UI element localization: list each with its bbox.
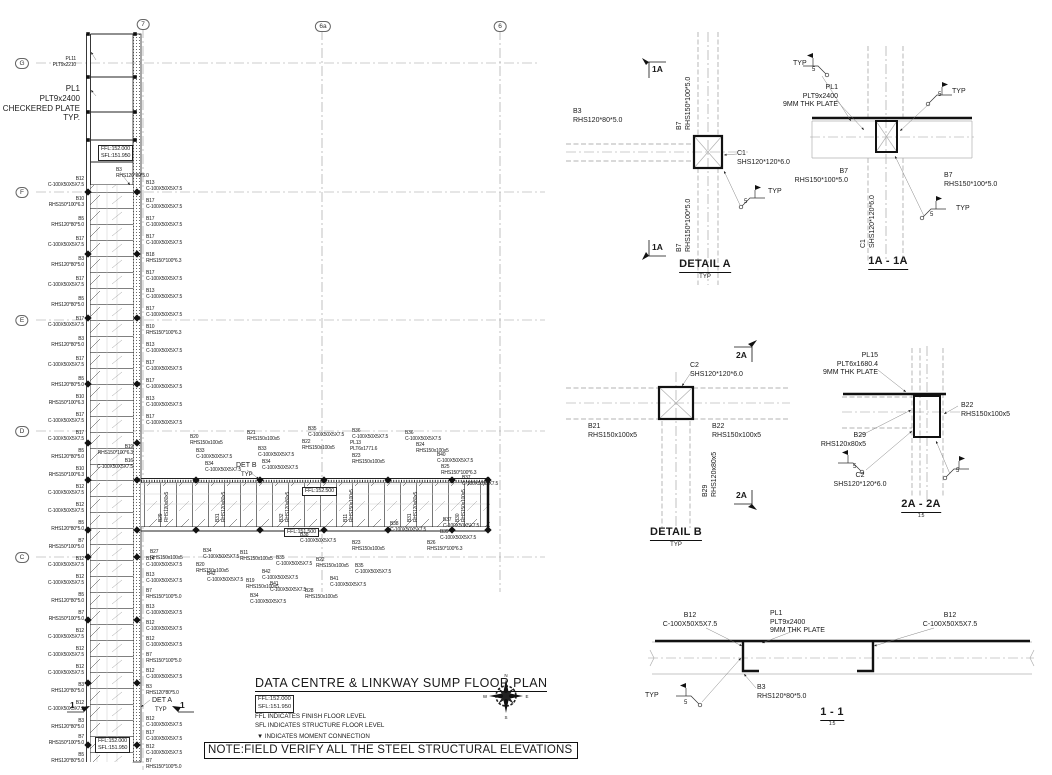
callout-label: B5 RHS120*80*5.0 bbox=[51, 592, 84, 604]
callout-label: B17 C-100X50X5X7.5 bbox=[146, 198, 182, 210]
callout-label: B17 C-100X50X5X7.5 bbox=[48, 356, 84, 368]
callout-label: B34 C-100X50X5X7.5 bbox=[262, 459, 298, 471]
callout-label: 1:5 bbox=[918, 513, 924, 519]
callout-label: B5 RHS120*80*5.0 bbox=[51, 296, 84, 308]
callout-label: B36 C-100X50X5X7.5 bbox=[352, 428, 388, 440]
callout-label: B7 RHS150*100*5.0 bbox=[146, 588, 181, 600]
callout-label: B7 RHS150*100*5.0 bbox=[49, 538, 84, 550]
callout-label: B3 RHS120*80*5.0 bbox=[573, 108, 622, 125]
callout-label: B38 C-100X50X5X7.5 bbox=[390, 521, 426, 533]
callout-label: B37 C-100X50X5X7.5 bbox=[462, 475, 498, 487]
callout-label: B11 RHS150x100x5 bbox=[343, 489, 355, 522]
grid-bubble-d: D bbox=[15, 426, 29, 437]
callout-label: TYP bbox=[768, 188, 782, 197]
callout-label: TYP bbox=[645, 692, 659, 701]
title-level-box: FFL:152.000 SFL:151.950 bbox=[255, 695, 294, 713]
callout-label: B12 C-100X50X5X7.5 bbox=[146, 716, 182, 728]
callout-label: B12 C-100X50X5X7.5 bbox=[146, 744, 182, 756]
section-1a-title: 1A - 1A bbox=[868, 255, 908, 270]
grid-bubble-c: C bbox=[15, 552, 29, 563]
grid-bubble-f: F bbox=[16, 187, 29, 198]
compass-letter: S bbox=[504, 715, 507, 720]
grid-bubble-6a: 6a bbox=[315, 21, 331, 32]
callout-label: 5 bbox=[930, 212, 933, 219]
callout-label: B20 RHS150x100x5 bbox=[190, 434, 223, 446]
callout-label: B22 RHS150x100x5 bbox=[712, 423, 761, 440]
callout-label: 5 bbox=[938, 92, 941, 99]
callout-label: B13 C-100X50X5X7.5 bbox=[146, 572, 182, 584]
callout-label: B19 RHS150*100*6.3 bbox=[98, 444, 133, 456]
callout-label: B29 RHS120x80x5 bbox=[158, 492, 170, 522]
callout-label: 5 bbox=[684, 700, 687, 707]
compass-letter: W bbox=[483, 694, 488, 699]
callout-label: B28 RHS150x100x5 bbox=[305, 588, 338, 600]
callout-label: B22 RHS150x100x5 bbox=[961, 402, 1010, 419]
callout-label: B31 RHS120x80x5 bbox=[407, 492, 419, 522]
callout-label: B13 C-100X50X5X7.5 bbox=[146, 604, 182, 616]
callout-label: B35 C-100X50X5X7.5 bbox=[355, 563, 391, 575]
callout-label: B3 RHS120*80*5.0 bbox=[51, 718, 84, 730]
callout-label: B26 RHS150*100*6.3 bbox=[427, 540, 462, 552]
callout-label: C1 SHS120*120*6.0 bbox=[860, 195, 877, 248]
callout-label: TYP bbox=[699, 274, 711, 281]
callout-label: B22 RHS150x100x5 bbox=[302, 439, 335, 451]
section-2a-marker: 2A bbox=[736, 350, 747, 360]
section-1-title: 1 - 1 bbox=[820, 706, 844, 721]
callout-label: B3 RHS120*80*5.0 bbox=[51, 336, 84, 348]
callout-label: B17 C-100X50X5X7.5 bbox=[48, 276, 84, 288]
callout-label: B27 RHS150x100x5 bbox=[150, 549, 183, 561]
callout-label: B22 RHS150x100x5 bbox=[316, 557, 349, 569]
callout-label: B7 RHS150*100*5.0 bbox=[49, 734, 84, 746]
callout-label: B12 C-100X50X5X7.5 bbox=[146, 668, 182, 680]
callout-label: B3 RHS120*80*5.0 bbox=[51, 256, 84, 268]
callout-label: B33 C-100X50X5X7.5 bbox=[258, 446, 294, 458]
callout-label: B17 C-100X50X5X7.5 bbox=[146, 234, 182, 246]
callout-label: 1:5 bbox=[829, 721, 835, 727]
callout-label: 5 bbox=[853, 464, 856, 471]
callout-label: B3 RHS120*80*5.0 bbox=[146, 684, 179, 696]
legend-ffl: FFL INDICATES FINISH FLOOR LEVEL bbox=[255, 713, 366, 720]
callout-label: B5 RHS120*80*5.0 bbox=[51, 520, 84, 532]
callout-label: B12 C-100X50X5X7.5 bbox=[923, 612, 977, 629]
grid-bubble-6: 6 bbox=[494, 21, 507, 32]
callout-label: TYP bbox=[241, 472, 253, 479]
det-a-ref: DET A bbox=[152, 697, 172, 706]
callout-label: B31 RHS120x80x5 bbox=[215, 492, 227, 522]
callout-label: B41 C-100X50X5X7.5 bbox=[270, 581, 306, 593]
callout-label: 5 bbox=[812, 67, 815, 74]
field-verify-note: NOTE:FIELD VERIFY ALL THE STEEL STRUCTUR… bbox=[204, 742, 578, 759]
callout-label: B18 RHS150*100*6.3 bbox=[146, 252, 181, 264]
callout-label: C1 SHS120*120*6.0 bbox=[737, 150, 790, 167]
callout-label: B10 RHS150*100*6.3 bbox=[49, 466, 84, 478]
legend-sfl: SFL INDICATES STRUCTURE FLOOR LEVEL bbox=[255, 722, 384, 729]
callout-label: B40 C-100X50X5X7.5 bbox=[437, 452, 473, 464]
callout-label: C2 SHS120*120*6.0 bbox=[834, 472, 887, 489]
callout-label: B3 RHS120*80*5.0 bbox=[51, 682, 84, 694]
callout-label: B41 C-100X50X5X7.5 bbox=[330, 576, 366, 588]
checkered-plate-note: PL1 PLT9x2400 CHECKERED PLATE TYP. bbox=[3, 84, 80, 123]
callout-label: B7 RHS150*100*5.0 bbox=[49, 610, 84, 622]
detail-a-title: DETAIL A bbox=[679, 258, 731, 273]
callout-label: B10 RHS150*100*6.3 bbox=[49, 196, 84, 208]
callout-label: PL11 PLT9x2210 bbox=[53, 56, 76, 68]
callout-label: B7 RHS150*100*5.0 bbox=[676, 199, 693, 252]
callout-label: B7 RHS150*100*5.0 bbox=[676, 77, 693, 130]
callout-label: B38 C-100X50X5X7.5 bbox=[300, 532, 336, 544]
grid-bubble-g: G bbox=[15, 58, 29, 69]
callout-label: B3 RHS120*80*5.0 bbox=[116, 167, 149, 179]
callout-label: B32 RHS120x80x5 bbox=[279, 492, 291, 522]
callout-label: B33 C-100X50X5X7.5 bbox=[196, 448, 232, 460]
callout-label: B17 C-100X50X5X7.5 bbox=[146, 306, 182, 318]
level-box: FFL:152.000 SFL:151.950 bbox=[95, 737, 130, 753]
callout-label: B16 C-100X50X5X7.5 bbox=[97, 458, 133, 470]
callout-label: B29 RHS120x80x5 bbox=[821, 432, 866, 449]
callout-label: B12 C-100X50X5X7.5 bbox=[48, 628, 84, 640]
callout-label: B13 C-100X50X5X7.5 bbox=[146, 180, 182, 192]
callout-label: B17 C-100X50X5X7.5 bbox=[48, 236, 84, 248]
callout-label: B10 RHS150*100*6.3 bbox=[146, 324, 181, 336]
callout-label: B12 C-100X50X5X7.5 bbox=[48, 176, 84, 188]
callout-label: PL15 PLT6x1680.4 9MM THK PLATE bbox=[823, 352, 878, 378]
callout-label: B11 RHS150x100x5 bbox=[240, 550, 273, 562]
callout-label: PL1 PLT9x2400 9MM THK PLATE bbox=[783, 84, 838, 110]
drawing-sheet: N E S W 76a6GFEDCPL11 PLT9x2210PL1 PLT9x… bbox=[0, 0, 1052, 775]
callout-label: PL13 PLT6x1771.6 bbox=[350, 440, 377, 452]
callout-label: B12 C-100X50X5X7.5 bbox=[146, 620, 182, 632]
callout-label: TYP bbox=[956, 205, 970, 214]
callout-label: B5 RHS120*80*5.0 bbox=[51, 216, 84, 228]
callout-label: TYP bbox=[952, 88, 966, 97]
callout-label: B10 RHS150*100*6.3 bbox=[49, 394, 84, 406]
callout-label: TYP bbox=[155, 707, 167, 714]
callout-label: B17 C-100X50X5X7.5 bbox=[146, 270, 182, 282]
callout-label: B7 RHS150*100*5.0 bbox=[795, 168, 848, 185]
callout-label: B17 C-100X50X5X7.5 bbox=[146, 216, 182, 228]
callout-label: B17 C-100X50X5X7.5 bbox=[48, 430, 84, 442]
callout-label: B3 RHS120*80*5.0 bbox=[757, 684, 806, 701]
callout-label: B7 RHS150*100*5.0 bbox=[944, 172, 997, 189]
callout-label: B12 C-100X50X5X7.5 bbox=[48, 574, 84, 586]
callout-label: B13 C-100X50X5X7.5 bbox=[146, 342, 182, 354]
callout-label: B12 C-100X50X5X7.5 bbox=[48, 484, 84, 496]
callout-label: TYP bbox=[793, 60, 807, 69]
callout-label: B12 C-100X50X5X7.5 bbox=[48, 502, 84, 514]
callout-label: B12 C-100X50X5X7.5 bbox=[48, 646, 84, 658]
callout-label: B17 C-100X50X5X7.5 bbox=[48, 316, 84, 328]
grid-bubble-7: 7 bbox=[137, 19, 150, 30]
section-2a-marker: 2A bbox=[736, 490, 747, 500]
callout-label: B21 RHS150x100x5 bbox=[588, 423, 637, 440]
sheet-title: DATA CENTRE & LINKWAY SUMP FLOOR PLAN bbox=[255, 676, 547, 692]
callout-label: B5 RHS120*80*5.0 bbox=[51, 448, 84, 460]
level-box: FFL:152.500 bbox=[302, 487, 337, 496]
callout-label: B17 C-100X50X5X7.5 bbox=[48, 412, 84, 424]
callout-label: B42 C-100X50X5X7.5 bbox=[207, 571, 243, 583]
callout-label: B13 C-100X50X5X7.5 bbox=[146, 288, 182, 300]
level-box: FFL:152.000 SFL:151.950 bbox=[98, 145, 133, 161]
section-1-marker: 1 bbox=[70, 700, 75, 710]
callout-label: B34 C-100X50X5X7.5 bbox=[250, 593, 286, 605]
callout-label: B17 C-100X50X5X7.5 bbox=[146, 360, 182, 372]
section-1a-marker: 1A bbox=[652, 242, 663, 252]
callout-label: B12 C-100X50X5X7.5 bbox=[48, 556, 84, 568]
callout-label: B34 C-100X50X5X7.5 bbox=[203, 548, 239, 560]
det-b-ref: DET B bbox=[236, 462, 257, 471]
weld-symbols bbox=[676, 53, 969, 707]
grid-bubble-e: E bbox=[15, 315, 28, 326]
callout-label: B17 C-100X50X5X7.5 bbox=[146, 378, 182, 390]
callout-label: B12 C-100X50X5X7.5 bbox=[146, 636, 182, 648]
callout-label: B13 C-100X50X5X7.5 bbox=[146, 396, 182, 408]
legend-moment: ▼ INDICATES MOMENT CONNECTION bbox=[257, 733, 370, 740]
section-1-marker: 1 bbox=[180, 700, 185, 710]
section-2a-title: 2A - 2A bbox=[901, 498, 941, 513]
callout-label: B12 C-100X50X5X7.5 bbox=[663, 612, 717, 629]
callout-label: 5 bbox=[956, 468, 959, 475]
callout-label: B23 RHS150x100x5 bbox=[352, 453, 385, 465]
callout-label: B35 C-100X50X5X7.5 bbox=[276, 555, 312, 567]
callout-label: B7 RHS150*100*5.0 bbox=[146, 758, 181, 770]
callout-label: PL1 PLT9x2400 9MM THK PLATE bbox=[770, 610, 825, 636]
compass-letter: E bbox=[525, 694, 528, 699]
callout-label: B29 RHS120x80x5 bbox=[702, 452, 719, 497]
callout-label: TYP bbox=[670, 542, 682, 549]
callout-label: B42 C-100X50X5X7.5 bbox=[262, 569, 298, 581]
callout-label: B12 C-100X50X5X7.5 bbox=[48, 700, 84, 712]
callout-label: B17 C-100X50X5X7.5 bbox=[146, 414, 182, 426]
callout-label: B36 C-100X50X5X7.5 bbox=[405, 430, 441, 442]
callout-label: C2 SHS120*120*6.0 bbox=[690, 362, 743, 379]
callout-label: B17 C-100X50X5X7.5 bbox=[146, 730, 182, 742]
section-1a-marker: 1A bbox=[652, 64, 663, 74]
callout-label: 5 bbox=[744, 199, 747, 206]
callout-label: B5 RHS120*80*5.0 bbox=[51, 752, 84, 764]
detail-b-title: DETAIL B bbox=[650, 526, 702, 541]
callout-label: B7 RHS150*100*5.0 bbox=[146, 652, 181, 664]
callout-label: B21 RHS150x100x5 bbox=[247, 430, 280, 442]
callout-label: B35 C-100X50X5X7.5 bbox=[308, 426, 344, 438]
callout-label: B5 RHS120*80*5.0 bbox=[51, 376, 84, 388]
callout-label: B12 C-100X50X5X7.5 bbox=[48, 664, 84, 676]
callout-label: B37 C-100X50X5X7.5 bbox=[443, 517, 479, 529]
callout-label: B23 RHS150x100x5 bbox=[352, 540, 385, 552]
